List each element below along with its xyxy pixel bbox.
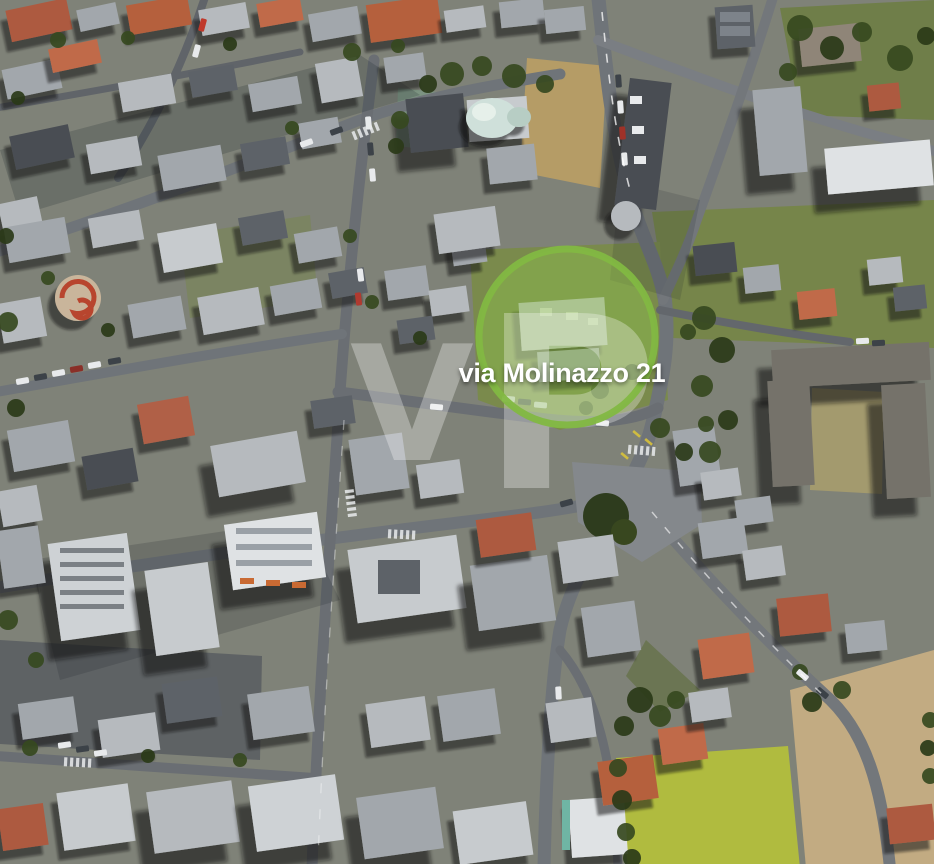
building-roof: [824, 139, 934, 194]
tree: [343, 43, 361, 61]
roof-detail: [236, 560, 312, 566]
tree: [440, 62, 464, 86]
building-roof: [161, 676, 222, 723]
roof-detail: [720, 12, 750, 22]
car: [369, 168, 376, 181]
crosswalk-stripe: [406, 530, 410, 539]
building-roof: [0, 485, 43, 527]
tree: [852, 22, 872, 42]
building-roof: [486, 144, 538, 185]
tree: [343, 229, 357, 243]
building-roof: [247, 686, 315, 740]
roof-detail: [60, 562, 124, 567]
tree: [692, 306, 716, 330]
tree: [233, 753, 247, 767]
building-roof: [698, 517, 749, 559]
building-roof: [144, 562, 219, 656]
roof-detail: [60, 548, 124, 553]
crosswalk-stripe: [64, 757, 68, 766]
tree: [820, 36, 844, 60]
car: [856, 338, 869, 345]
building-roof: [767, 379, 814, 487]
tree: [709, 337, 735, 363]
car: [615, 74, 622, 87]
tree: [141, 749, 155, 763]
building-roof: [881, 383, 931, 499]
tree: [11, 91, 25, 105]
tree: [391, 39, 405, 53]
tree: [887, 45, 913, 71]
tree: [612, 790, 632, 810]
watermark-letter-v: V: [350, 311, 474, 498]
aerial-photo: V P via Molinazzo 21: [0, 0, 934, 864]
building-roof: [797, 288, 838, 320]
building-roof: [356, 787, 444, 860]
roof-detail: [562, 800, 570, 850]
car: [367, 142, 374, 155]
building-roof: [56, 783, 135, 850]
crosswalk-stripe: [82, 758, 86, 767]
building-roof: [893, 284, 927, 311]
building-roof: [434, 206, 501, 254]
tree: [101, 323, 115, 337]
tree: [718, 410, 738, 430]
tree: [833, 681, 851, 699]
tree: [502, 64, 526, 88]
tree: [419, 75, 437, 93]
building-roof: [405, 93, 468, 153]
car: [555, 686, 562, 699]
car: [617, 100, 624, 113]
roof-detail: [60, 590, 124, 595]
crosswalk-stripe: [70, 758, 74, 767]
tree: [7, 399, 25, 417]
building-roof: [437, 688, 501, 742]
building-roof: [845, 620, 888, 654]
tree: [472, 56, 492, 76]
tree: [614, 716, 634, 736]
ground-patch: [810, 388, 884, 494]
car: [872, 340, 885, 347]
tree: [649, 705, 671, 727]
small-dome: [507, 107, 531, 127]
building-roof: [248, 774, 344, 852]
tree: [41, 271, 55, 285]
tree: [121, 31, 135, 45]
roof-detail: [292, 582, 306, 588]
roof-detail: [632, 126, 644, 134]
crosswalk-stripe: [412, 530, 416, 539]
marker-label: via Molinazzo 21: [459, 358, 666, 388]
building-roof: [867, 82, 902, 111]
roof-detail: [630, 96, 642, 104]
crosswalk-stripe: [388, 529, 392, 538]
crosswalk-stripe: [88, 758, 92, 767]
roof-detail: [378, 560, 420, 594]
building-roof: [384, 265, 430, 301]
building-roof: [224, 512, 326, 590]
dome-highlight: [472, 103, 496, 121]
crosswalk-stripe: [76, 758, 80, 767]
building-roof: [0, 525, 46, 588]
tree: [787, 15, 813, 41]
tree: [680, 324, 696, 340]
building-roof: [658, 723, 709, 765]
roof-detail: [60, 604, 124, 609]
tree: [691, 375, 713, 397]
satellite-map-canvas: V P via Molinazzo 21: [0, 0, 934, 864]
building-roof: [693, 242, 738, 276]
tree: [698, 416, 714, 432]
tree: [536, 75, 554, 93]
roof-detail: [236, 528, 312, 534]
building-roof: [453, 801, 534, 864]
building-roof: [581, 600, 641, 657]
building-roof: [688, 687, 732, 722]
playground: [55, 275, 101, 321]
tree: [28, 652, 44, 668]
building-roof: [146, 780, 240, 853]
tree: [609, 759, 627, 777]
building-roof: [697, 633, 754, 680]
building-roof: [383, 52, 426, 83]
building-roof: [315, 57, 363, 104]
building-roof: [611, 201, 641, 231]
roof-detail: [240, 578, 254, 584]
roof-detail: [634, 156, 646, 164]
building-roof: [470, 555, 556, 631]
tree: [617, 823, 635, 841]
building-roof: [700, 467, 742, 500]
tree: [627, 687, 653, 713]
roof-detail: [60, 576, 124, 581]
building-roof: [867, 256, 904, 285]
car: [619, 126, 626, 139]
building-roof: [545, 697, 596, 743]
building-roof: [499, 0, 545, 28]
tree: [675, 443, 693, 461]
roof-detail: [720, 26, 750, 36]
tree: [22, 740, 38, 756]
building-roof: [0, 803, 49, 851]
building-roof: [310, 395, 355, 429]
building-roof: [752, 86, 807, 176]
building-roof: [544, 6, 586, 34]
tree: [391, 111, 409, 129]
tree: [50, 32, 66, 48]
roof-detail: [266, 580, 280, 586]
building-roof: [365, 696, 431, 748]
crosswalk-stripe: [400, 530, 404, 539]
tree: [699, 441, 721, 463]
building-roof: [743, 264, 782, 294]
building-roof: [886, 804, 934, 845]
tree: [388, 138, 404, 154]
roof-detail: [236, 544, 312, 550]
tree: [365, 295, 379, 309]
tree: [779, 63, 797, 81]
tree: [223, 37, 237, 51]
tree: [802, 692, 822, 712]
tree: [667, 691, 685, 709]
tree: [285, 121, 299, 135]
building-roof: [776, 593, 832, 636]
building-roof: [742, 545, 786, 580]
crosswalk-stripe: [394, 530, 398, 539]
